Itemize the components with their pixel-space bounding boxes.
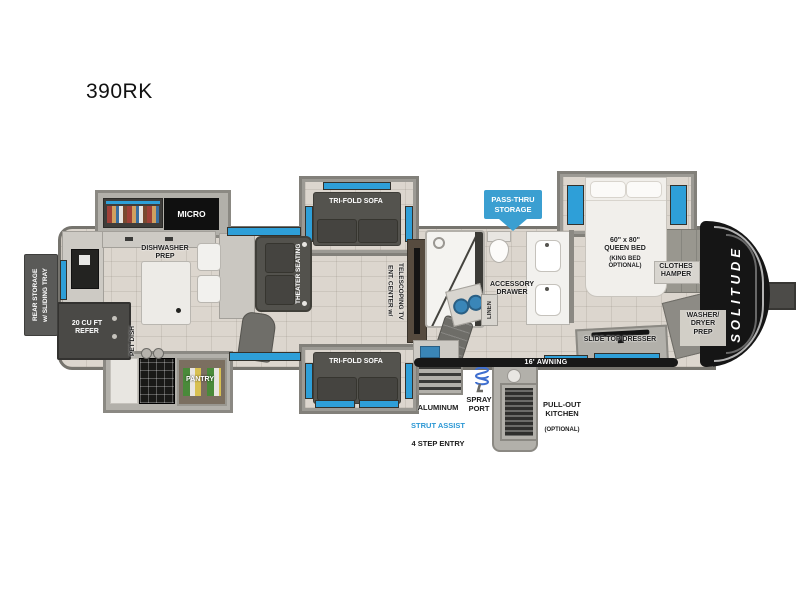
rear-sink-appliance: [71, 249, 99, 289]
sink: [535, 240, 561, 272]
accessory-drawer-label: ACCESSORY DRAWER: [486, 281, 538, 298]
pass-thru-storage-badge: PASS-THRU STORAGE: [484, 190, 542, 219]
window: [60, 260, 67, 300]
pass-thru-storage-label: PASS-THRU STORAGE: [491, 195, 534, 214]
floorplan-canvas: 390RK REAR STORAGE w/ SLIDING TRAY PASS-…: [0, 0, 800, 600]
slide-top-dresser-label: SLIDE TOP DRESSER: [576, 336, 664, 344]
sofa-bottom-label: TRI-FOLD SOFA: [313, 358, 399, 366]
rear-storage-badge: REAR STORAGE w/ SLIDING TRAY: [24, 254, 58, 336]
shelf-items: [107, 206, 159, 223]
window: [670, 185, 687, 225]
shower-head-icon: [433, 237, 445, 249]
dinette-table: [219, 233, 255, 319]
entry-sink: [420, 346, 440, 358]
entry-label-line2: STRUT ASSIST: [403, 421, 473, 430]
pull-out-sink: [507, 369, 521, 383]
dishwasher-prep-label: DISHWASHER PREP: [132, 245, 198, 262]
cupholder: [302, 242, 307, 247]
window: [359, 400, 399, 408]
bath-bedroom-wall: [569, 230, 574, 323]
sofa-slide-bottom: TRI-FOLD SOFA: [299, 344, 419, 414]
shelf-window-strip: [106, 201, 160, 204]
pillow: [590, 181, 626, 198]
window: [227, 227, 301, 236]
microwave: MICRO: [164, 198, 219, 230]
pull-out-kitchen-optional: (OPTIONAL): [534, 427, 590, 434]
window: [305, 363, 313, 399]
cupholder: [302, 301, 307, 306]
sofa-top-label: TRI-FOLD SOFA: [313, 198, 399, 206]
window: [567, 185, 584, 225]
pet-bowl: [141, 348, 152, 359]
floorplan-title: 390RK: [86, 80, 153, 104]
double-sink-vanity: [526, 231, 570, 325]
window: [405, 206, 413, 242]
kitchen-lower-slide: PANTRY: [103, 351, 233, 413]
pull-out-kitchen-label: PULL-OUT KITCHEN (OPTIONAL): [534, 392, 590, 443]
entry-steps: [417, 364, 463, 395]
shelf-unit: [103, 198, 163, 228]
awning-label: 16' AWNING: [525, 359, 568, 366]
clothes-hamper-label: CLOTHES HAMPER: [652, 263, 700, 280]
window: [229, 352, 301, 361]
queen-bed-label: 60" x 80" QUEEN BED: [587, 237, 663, 254]
pantry-label: PANTRY: [179, 376, 221, 384]
window: [315, 400, 355, 408]
tv-cabinet: [407, 239, 427, 343]
rear-counter: [62, 231, 104, 305]
pillow: [626, 181, 662, 198]
sink: [535, 284, 561, 316]
spray-port-label: SPRAY PORT: [456, 396, 502, 414]
dinette-chair: [197, 275, 221, 303]
cooktop: [139, 358, 175, 404]
washer-dryer-prep-label: WASHER/ DRYER PREP: [678, 312, 728, 337]
linen-cabinet: LINEN: [481, 294, 498, 326]
island-sink-drain: [176, 308, 181, 313]
pantry: PANTRY: [177, 358, 227, 406]
pet-bowl: [153, 348, 164, 359]
dinette-chair: [197, 243, 221, 271]
pull-out-kitchen-unit: [500, 383, 538, 441]
micro-label: MICRO: [177, 209, 205, 219]
awning-bar: 16' AWNING: [414, 358, 678, 367]
pet-dish-label: PET DISH: [129, 322, 140, 360]
counter: [110, 358, 138, 404]
window: [323, 182, 391, 190]
refer-label: 20 CU FT REFER: [61, 320, 113, 337]
theater-seating-label: THEATER SEATING: [295, 242, 302, 306]
ent-center-label: ENT. CENTER w/ TELESCOPING TV: [384, 241, 406, 341]
linen-label: LINEN: [487, 301, 493, 319]
kitchen-island: [141, 261, 191, 325]
hitch-pin: [766, 282, 796, 310]
pass-thru-arrow-icon: [499, 219, 527, 231]
refrigerator: 20 CU FT REFER: [57, 302, 131, 360]
rear-storage-badge-label: REAR STORAGE w/ SLIDING TRAY: [31, 268, 51, 322]
telescoping-tv: [414, 248, 420, 334]
spray-port-coil-icon: [472, 367, 492, 395]
entry-label-line3: 4 STEP ENTRY: [403, 439, 473, 448]
theater-seating: THEATER SEATING: [255, 236, 312, 312]
